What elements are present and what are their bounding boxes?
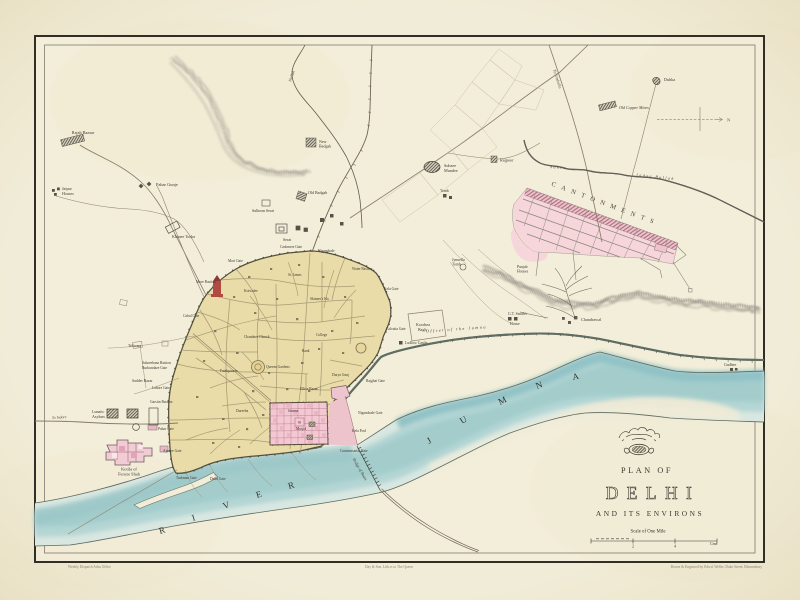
svg-text:Sudder Bazar: Sudder Bazar [132,379,153,383]
svg-text:Delhi Gate: Delhi Gate [210,477,226,481]
svg-text:Pahar Gate: Pahar Gate [158,427,174,431]
svg-text:Badgah: Badgah [319,144,331,149]
svg-text:PLAN OF: PLAN OF [621,466,673,475]
svg-text:Lahore Gate: Lahore Gate [152,386,170,390]
svg-text:Ludlow Castle: Ludlow Castle [405,341,428,345]
svg-text:Gadhee: Gadhee [724,362,736,367]
svg-text:Durya Gunj: Durya Gunj [332,373,349,377]
svg-text:Turkman Gate: Turkman Gate [176,476,197,480]
svg-text:Tomb: Tomb [440,189,449,193]
svg-text:Houses: Houses [517,270,529,274]
svg-text:Ellice Bazar: Ellice Bazar [300,387,318,391]
svg-text:Ajmere Gate: Ajmere Gate [163,449,182,453]
svg-text:Serai: Serai [283,237,292,242]
svg-text:Cms: Cms [710,541,718,546]
svg-text:More Bastion: More Bastion [196,280,216,284]
svg-text:Kotwalee: Kotwalee [244,289,258,293]
svg-text:St. James: St. James [288,273,302,277]
svg-text:Skinner's Ho.: Skinner's Ho. [310,297,330,301]
svg-text:House: House [510,322,520,326]
svg-text:Nigambode: Nigambode [318,249,335,253]
svg-text:Rajpoor: Rajpoor [500,158,514,163]
svg-text:Commissariat Gate: Commissariat Gate [340,449,368,453]
svg-text:Asylum: Asylum [92,414,106,419]
svg-text:Feroze Shah: Feroze Shah [118,472,141,477]
svg-text:2: 2 [632,544,634,549]
svg-text:Dureeba: Dureeba [236,409,249,413]
svg-text:AND ITS ENVIRONS: AND ITS ENVIRONS [596,509,704,518]
svg-text:DELHI: DELHI [606,483,700,503]
svg-text:Sabzeebana Bastion: Sabzeebana Bastion [142,361,171,365]
svg-text:Burkundaze Gate: Burkundaze Gate [142,366,167,370]
svg-text:Scale of One Mile: Scale of One Mile [630,530,665,535]
svg-text:Mundee: Mundee [444,168,458,173]
svg-text:Jumma: Jumma [288,409,299,413]
svg-text:Old Copper Mines: Old Copper Mines [619,105,649,110]
svg-text:Kela Pool: Kela Pool [352,429,366,433]
svg-text:4: 4 [674,544,676,549]
svg-text:Nigambode Gate: Nigambode Gate [358,411,383,415]
svg-text:Teliwara: Teliwara [128,344,142,348]
svg-text:Khanee Tooba: Khanee Tooba [172,234,195,239]
svg-text:Pahar Gunje: Pahar Gunje [156,182,178,187]
svg-text:Queens Gardens: Queens Gardens [266,365,290,369]
svg-text:Tomb: Tomb [452,263,461,267]
svg-text:Dubka: Dubka [664,77,675,82]
svg-text:Calcutta Gate: Calcutta Gate [386,327,406,331]
svg-text:Jynuella: Jynuella [452,258,465,262]
svg-text:Old Badgah: Old Badgah [308,190,327,195]
svg-text:Weekly Dispatch Atlas Office: Weekly Dispatch Atlas Office [68,565,111,569]
svg-text:Rajghat Gate: Rajghat Gate [366,379,385,383]
svg-text:Chandnee Chowk: Chandnee Chowk [244,335,270,339]
svg-text:Chandrawal: Chandrawal [581,317,602,322]
svg-text:Kela Gate: Kela Gate [384,287,399,291]
svg-text:Cashmere Gate: Cashmere Gate [280,245,302,249]
svg-text:Water Bastion: Water Bastion [352,267,373,271]
svg-text:Punjab: Punjab [517,265,528,269]
svg-text:College: College [316,333,328,337]
svg-text:Rajah Bazaar: Rajah Bazaar [72,130,95,135]
svg-text:Bank: Bank [302,349,310,353]
svg-text:G.T. Smith's: G.T. Smith's [508,312,527,316]
svg-text:Garstin Bastion: Garstin Bastion [150,400,173,404]
svg-text:Sulkean Serai: Sulkean Serai [252,208,275,213]
svg-text:Musjid: Musjid [296,427,306,431]
svg-text:Houses: Houses [62,191,74,196]
svg-text:Fatehpooree: Fatehpooree [220,369,238,373]
svg-text:Cabul Gate: Cabul Gate [183,314,200,318]
svg-text:Mori Gate: Mori Gate [228,259,243,263]
